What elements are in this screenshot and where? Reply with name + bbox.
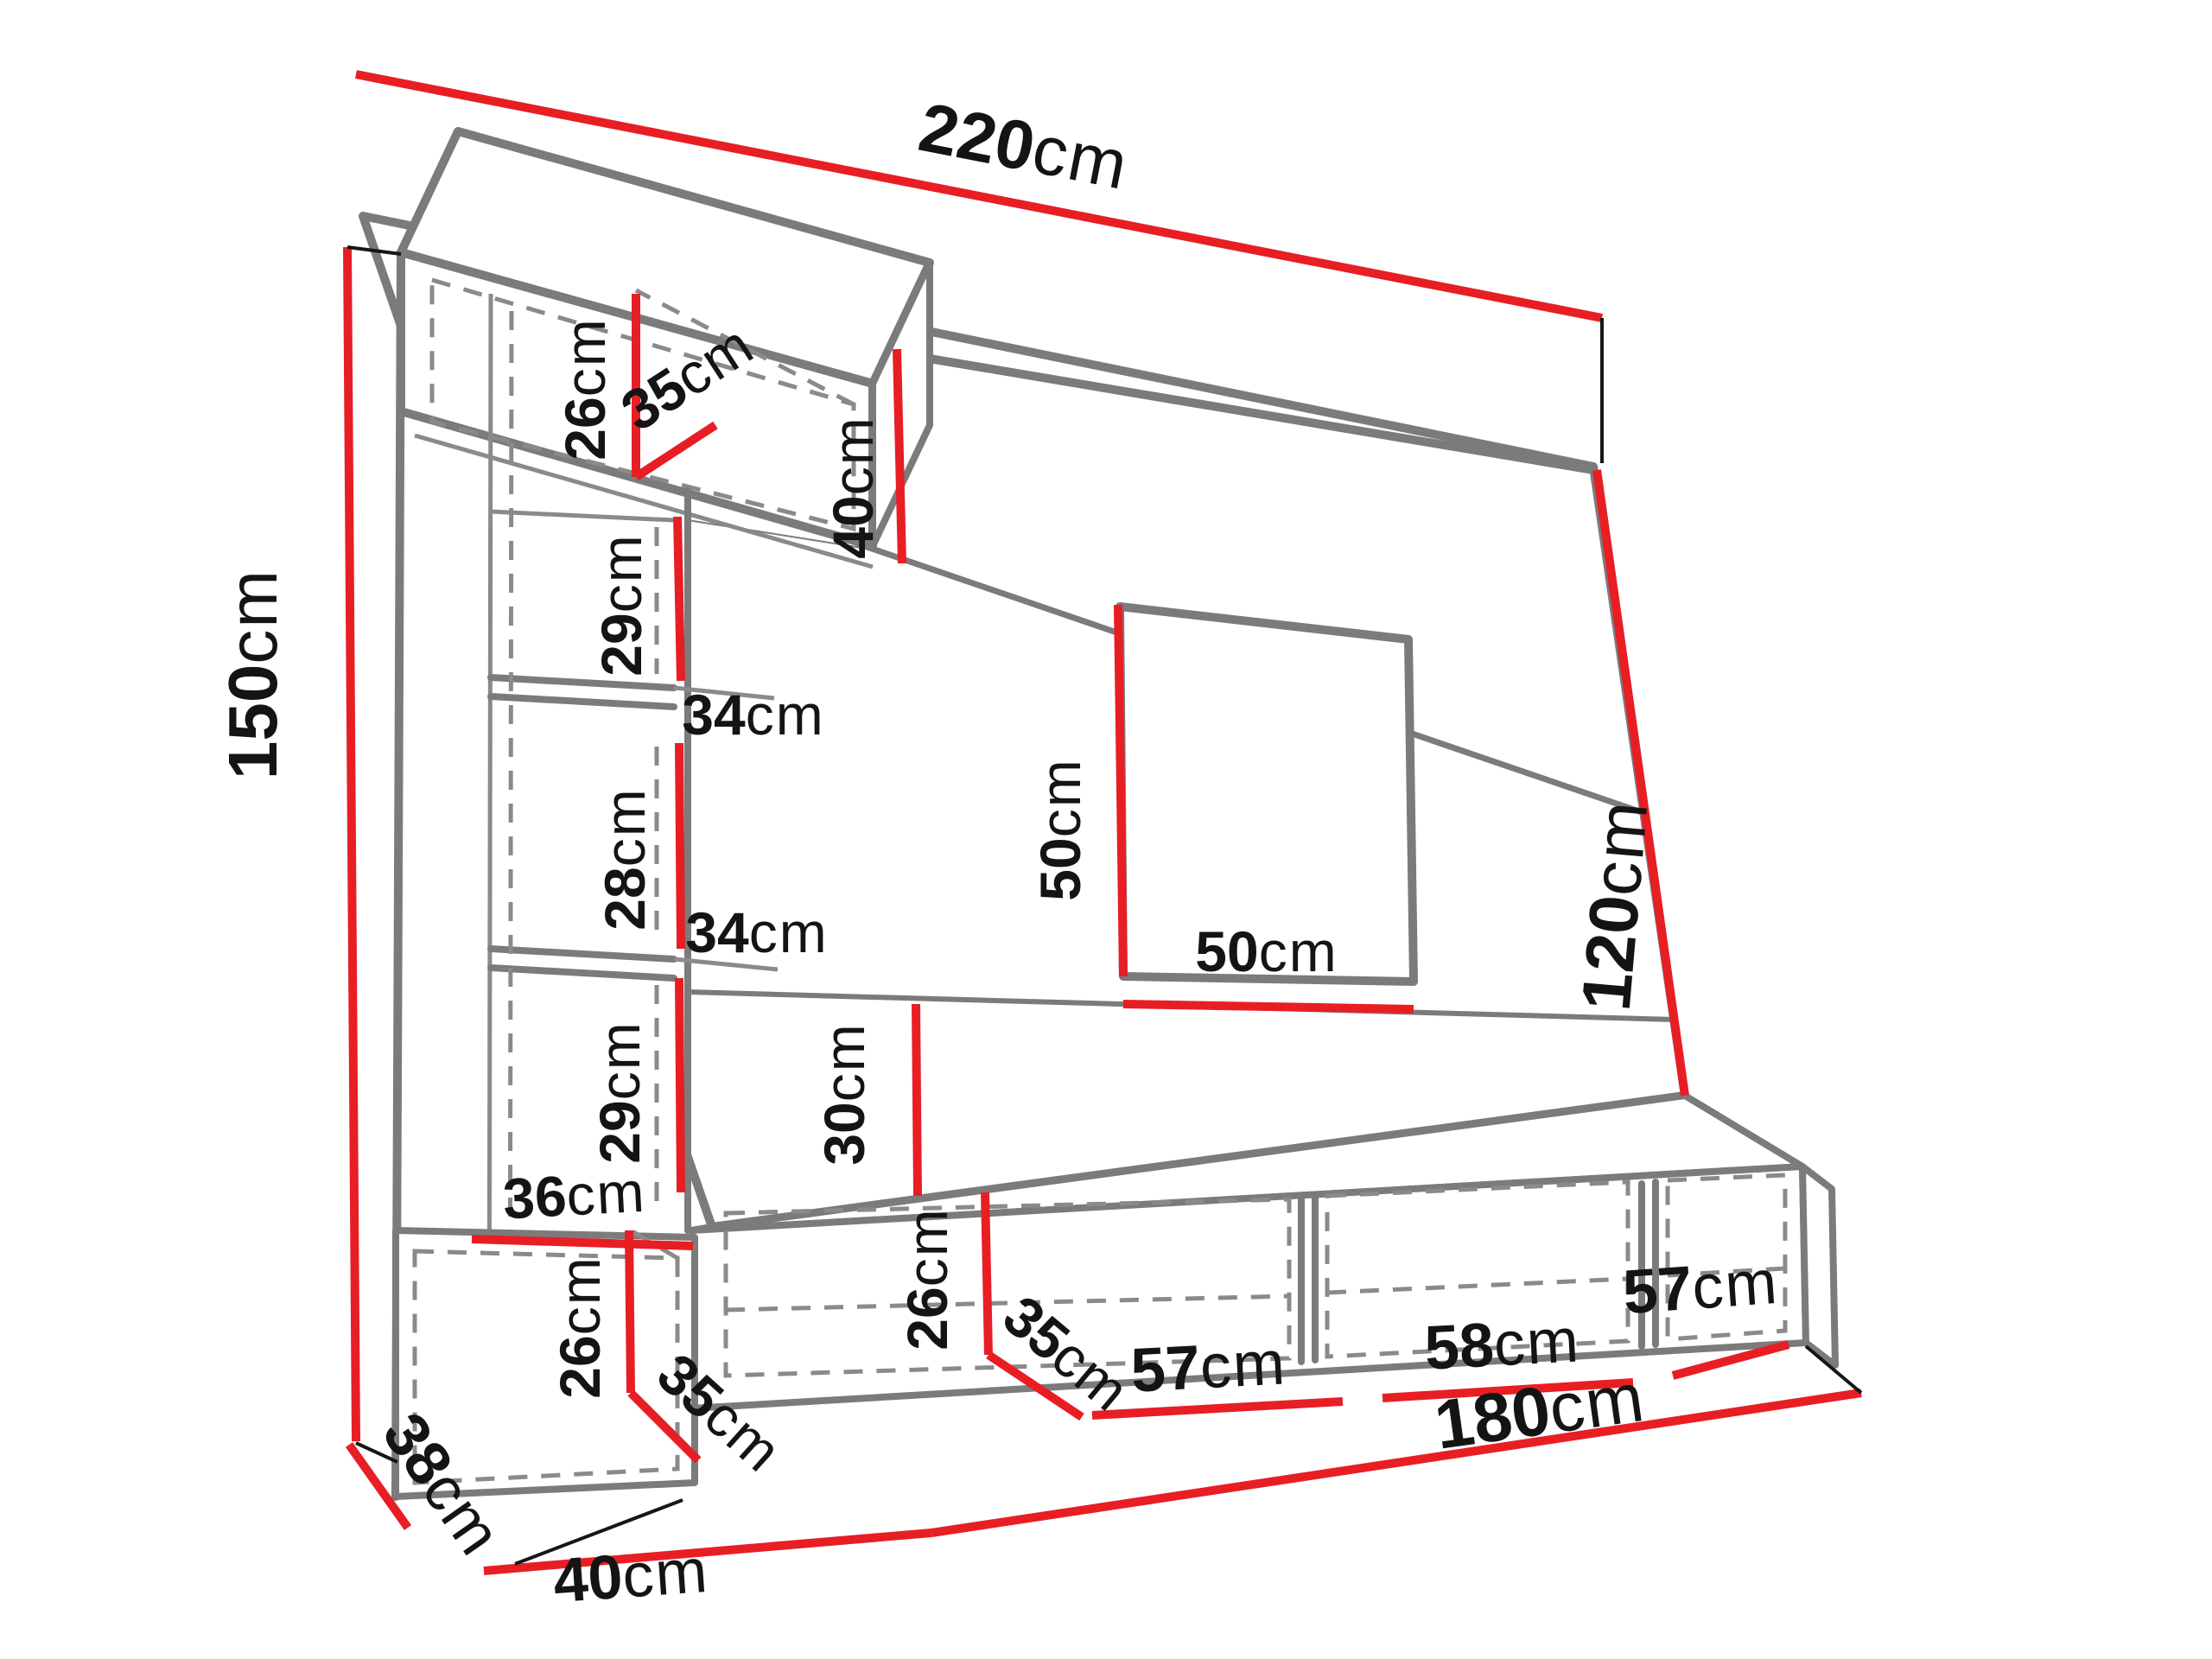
dim-label-shelf-width-lower: 34cm (685, 900, 828, 964)
dim-line-niche-width (1123, 1004, 1414, 1009)
dim-label-bottom-cabinet-width: 36cm (501, 1160, 647, 1231)
dim-line-bottom-cabinet-height (629, 1230, 631, 1393)
bench-right-face (1802, 1166, 1835, 1365)
dim-label-top-panel-height: 40cm (821, 416, 885, 558)
dim-line-bench-compartment1-width (1092, 1402, 1343, 1415)
dim-label-base-width: 40cm (551, 1536, 711, 1616)
dim-line-shelf-gap-upper (677, 517, 681, 681)
dim-label-shelf-gap-lower: 29cm (588, 1020, 652, 1163)
dim-label-shelf-gap-upper: 29cm (589, 533, 653, 676)
dim-label-shelf-width-upper: 34cm (682, 683, 824, 747)
dim-line-top-panel-height (897, 349, 902, 563)
dim-label-niche-width: 50cm (1195, 919, 1338, 983)
dim-line-bench-compartment-height (985, 1192, 988, 1355)
dim-line-total-height (347, 247, 356, 1441)
dim-line-shelf-gap-middle (679, 743, 681, 949)
dim-label-bottom-cabinet-height: 26cm (548, 1255, 612, 1398)
dim-line-shelf-gap-lower (679, 978, 681, 1192)
dim-label-bottom-panel-height: 30cm (812, 1022, 876, 1165)
dim-line-niche-height (1118, 605, 1123, 976)
dim-label-total-height: 150cm (214, 569, 291, 779)
dim-label-shelf-gap-middle: 28cm (593, 787, 657, 930)
dim-label-top-cabinet-height: 26cm (553, 317, 617, 460)
dim-line-bottom-panel-height (916, 1004, 918, 1196)
dim-label-bench-compartment1-width: 57cm (1129, 1328, 1288, 1405)
furniture-dimension-diagram: 220cm 150cm 26cm 35cm 40cm 29cm 34cm 28c… (0, 0, 2212, 1659)
dim-label-bench-compartment3-width: 57cm (1621, 1248, 1781, 1327)
dim-label-bench-compartment-height: 26cm (895, 1207, 959, 1350)
dim-label-niche-height: 50cm (1028, 758, 1092, 900)
